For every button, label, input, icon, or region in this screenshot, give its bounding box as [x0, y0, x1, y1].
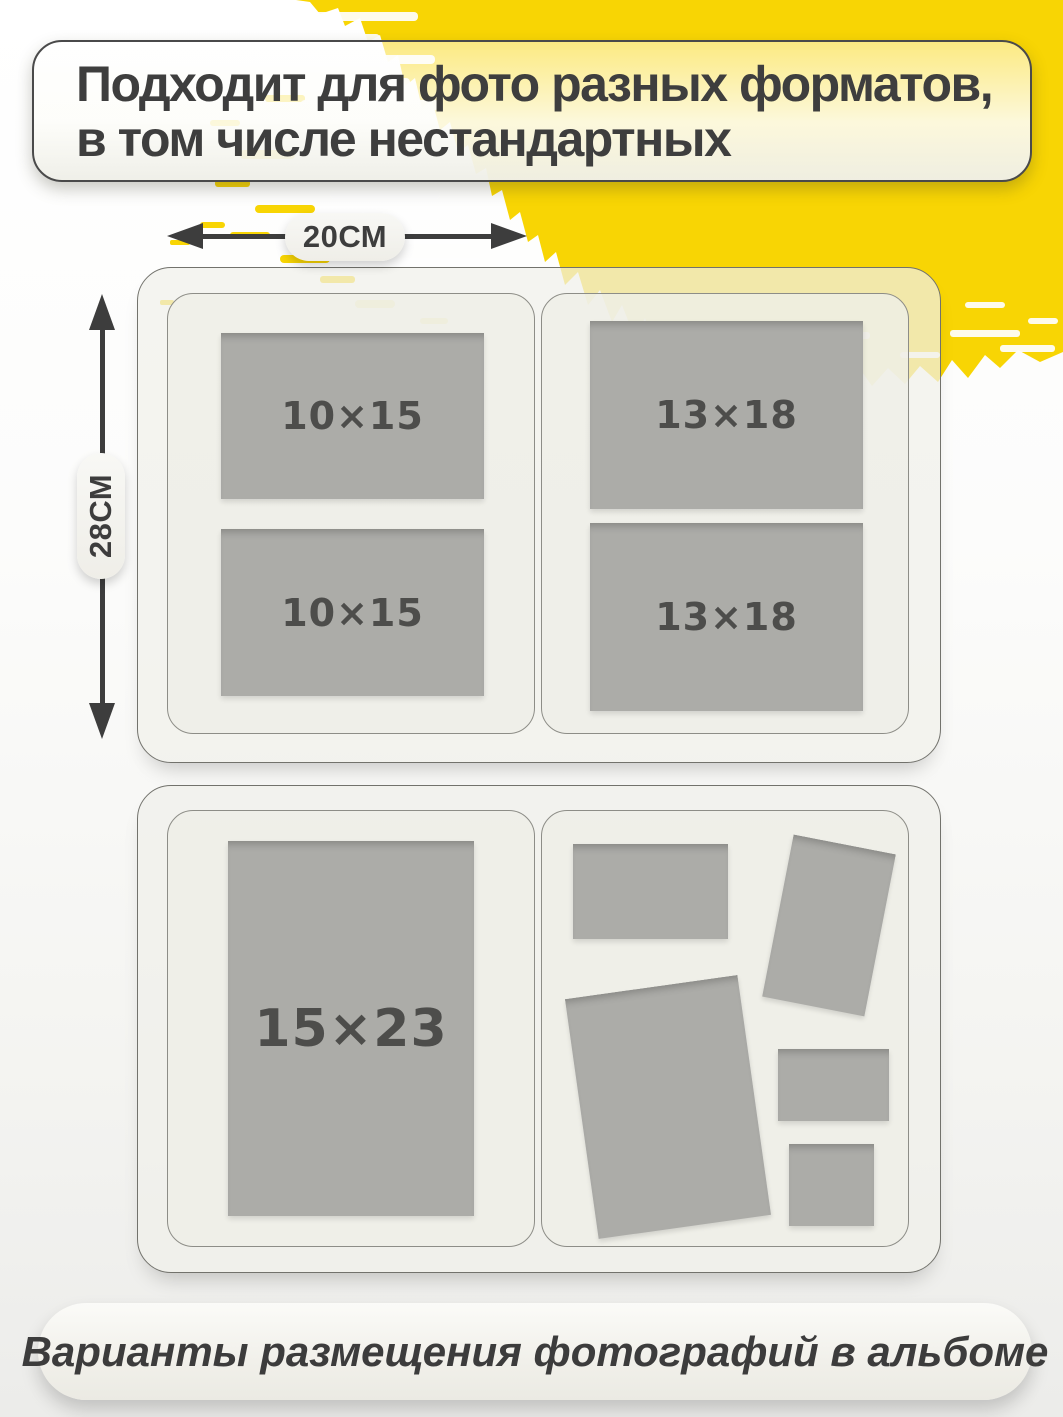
photo-placeholder-10x15-a: 10×15 [221, 333, 484, 499]
album-page-bottom-right [541, 810, 909, 1247]
album-page-top-right: 13×18 13×18 [541, 293, 909, 734]
width-label-pill: 20см [285, 213, 405, 261]
title-line-1: Подходит для фото разных форматов, [76, 57, 1000, 112]
photo-placeholder-10x15-b: 10×15 [221, 529, 484, 696]
caption-text: Варианты размещения фотографий в альбоме [22, 1328, 1049, 1376]
photo-placeholder-13x18-a: 13×18 [590, 321, 863, 509]
height-label: 28см [83, 474, 119, 558]
height-label-pill: 28см [77, 453, 125, 579]
photo-size-label: 10×15 [281, 591, 424, 635]
title-line-2: в том числе нестандартных [76, 112, 1000, 167]
caption-banner: Варианты размещения фотографий в альбоме [38, 1303, 1032, 1400]
width-label: 20см [303, 219, 387, 255]
photo-placeholder-small-square [789, 1144, 874, 1226]
photo-placeholder-tilted-portrait [762, 835, 896, 1017]
photo-placeholder-15x23: 15×23 [228, 841, 474, 1216]
arrow-up-icon [89, 294, 115, 330]
photo-size-label: 15×23 [254, 999, 447, 1059]
photo-placeholder-13x18-b: 13×18 [590, 523, 863, 711]
photo-placeholder-small-landscape [573, 844, 728, 939]
album-spread-top: 10×15 10×15 13×18 13×18 [137, 267, 941, 763]
album-page-top-left: 10×15 10×15 [167, 293, 535, 734]
title-banner: Подходит для фото разных форматов, в том… [32, 40, 1032, 182]
album-page-bottom-left: 15×23 [167, 810, 535, 1247]
arrow-right-icon [491, 223, 527, 249]
arrow-down-icon [89, 703, 115, 739]
photo-size-label: 13×18 [655, 393, 798, 437]
photo-size-label: 13×18 [655, 595, 798, 639]
arrow-left-icon [167, 223, 203, 249]
photo-placeholder-small-wide [778, 1049, 889, 1121]
album-spread-bottom: 15×23 [137, 785, 941, 1273]
photo-size-label: 10×15 [281, 394, 424, 438]
photo-placeholder-tilted-large [565, 975, 771, 1239]
